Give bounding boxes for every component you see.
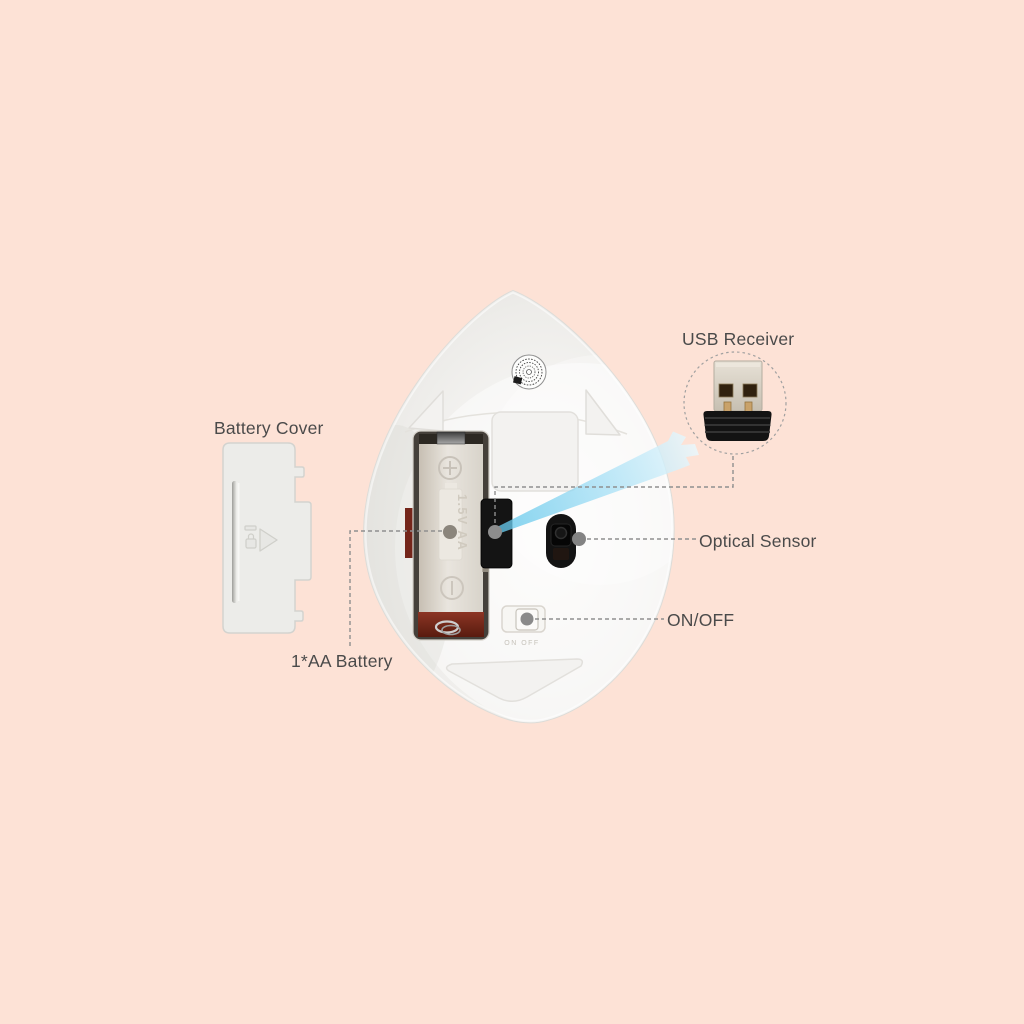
center-panel <box>492 412 578 491</box>
usb-receiver-plug <box>714 361 762 412</box>
product-sticker <box>512 355 546 389</box>
optical-anchor-dot <box>572 532 586 546</box>
battery-anchor-dot <box>443 525 457 539</box>
optical-sensor <box>546 514 576 568</box>
usb-receiver-body <box>703 411 771 441</box>
battery-contact <box>437 432 465 444</box>
diagram-canvas: 1.5V AA ON OFF <box>0 0 1024 1024</box>
usb-receiver-detail <box>684 352 786 454</box>
onoff-emboss-text: ON OFF <box>504 640 539 647</box>
battery-cover-groove <box>232 481 238 603</box>
usb-anchor-dot <box>488 525 502 539</box>
battery-cover <box>223 443 311 633</box>
usb-receiver-label: USB Receiver <box>682 329 794 349</box>
product-diagram: 1.5V AA ON OFF <box>0 0 1024 1024</box>
onoff-anchor-dot <box>521 613 534 626</box>
battery-emboss-text: 1.5V AA <box>455 494 469 551</box>
battery-cover-label: Battery Cover <box>214 418 324 438</box>
aa-battery-label: 1*AA Battery <box>291 651 393 671</box>
onoff-label: ON/OFF <box>667 610 734 630</box>
optical-sensor-label: Optical Sensor <box>699 531 817 551</box>
